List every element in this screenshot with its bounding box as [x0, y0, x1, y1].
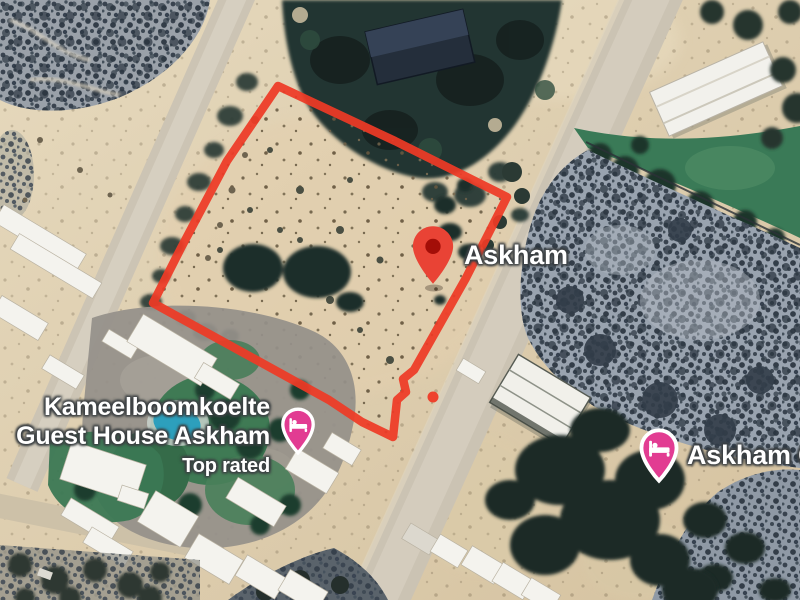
lodging-pin-askham-icon[interactable]: [637, 427, 681, 484]
parcel-vertex-dot: [428, 392, 439, 403]
lodging-pin-guesthouse-icon[interactable]: [279, 406, 317, 456]
guesthouse-label[interactable]: Kameelboomkoelte Guest House Askham Top …: [0, 393, 270, 478]
satellite-map-canvas[interactable]: Askham Kameelboomkoelte Guest House Askh…: [0, 0, 800, 600]
place-label-right[interactable]: Askham G: [687, 442, 800, 469]
guesthouse-name-line2: Guest House Askham: [0, 422, 270, 451]
top-rated-badge: Top rated: [0, 454, 270, 478]
red-map-pin-icon[interactable]: [410, 224, 456, 286]
satellite-imagery: [0, 0, 800, 600]
town-label[interactable]: Askham: [464, 242, 568, 269]
guesthouse-name-line1: Kameelboomkoelte: [0, 393, 270, 422]
